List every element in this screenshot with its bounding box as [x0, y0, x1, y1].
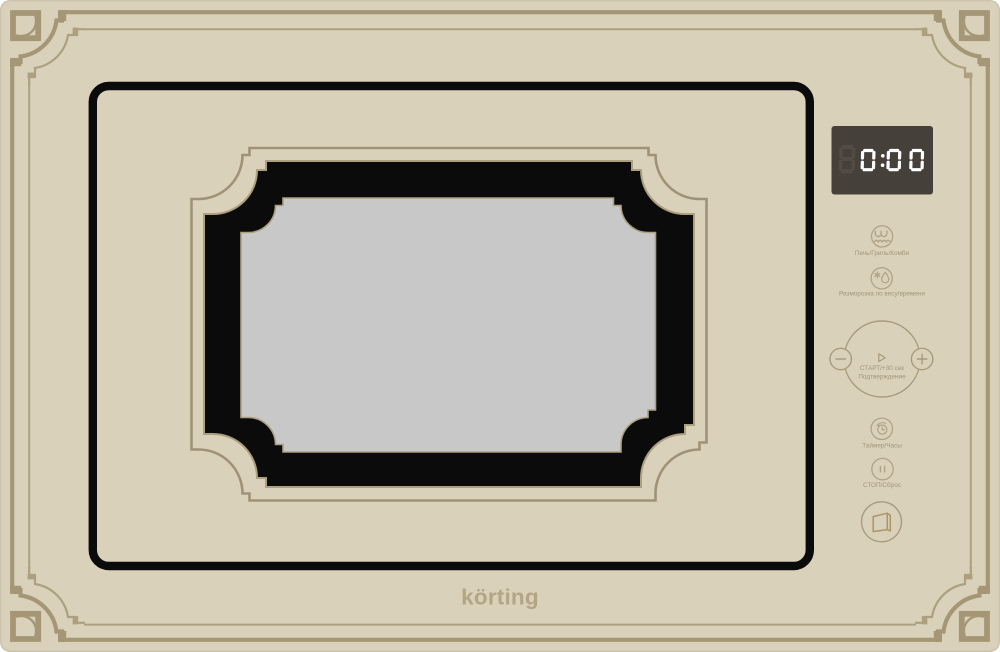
svg-text:Подтверждение: Подтверждение [858, 374, 906, 381]
svg-text:Печь/Гриль/Комби: Печь/Гриль/Комби [855, 249, 910, 257]
svg-text:körting: körting [461, 585, 539, 610]
svg-text:Разморозка по весу/времени: Разморозка по весу/времени [839, 291, 925, 298]
svg-text:СТОП/Сброс: СТОП/Сброс [863, 481, 902, 489]
svg-text:Таймер/Часы: Таймер/Часы [862, 442, 902, 450]
svg-text:СТАРТ/+30 сек: СТАРТ/+30 сек [860, 365, 904, 372]
